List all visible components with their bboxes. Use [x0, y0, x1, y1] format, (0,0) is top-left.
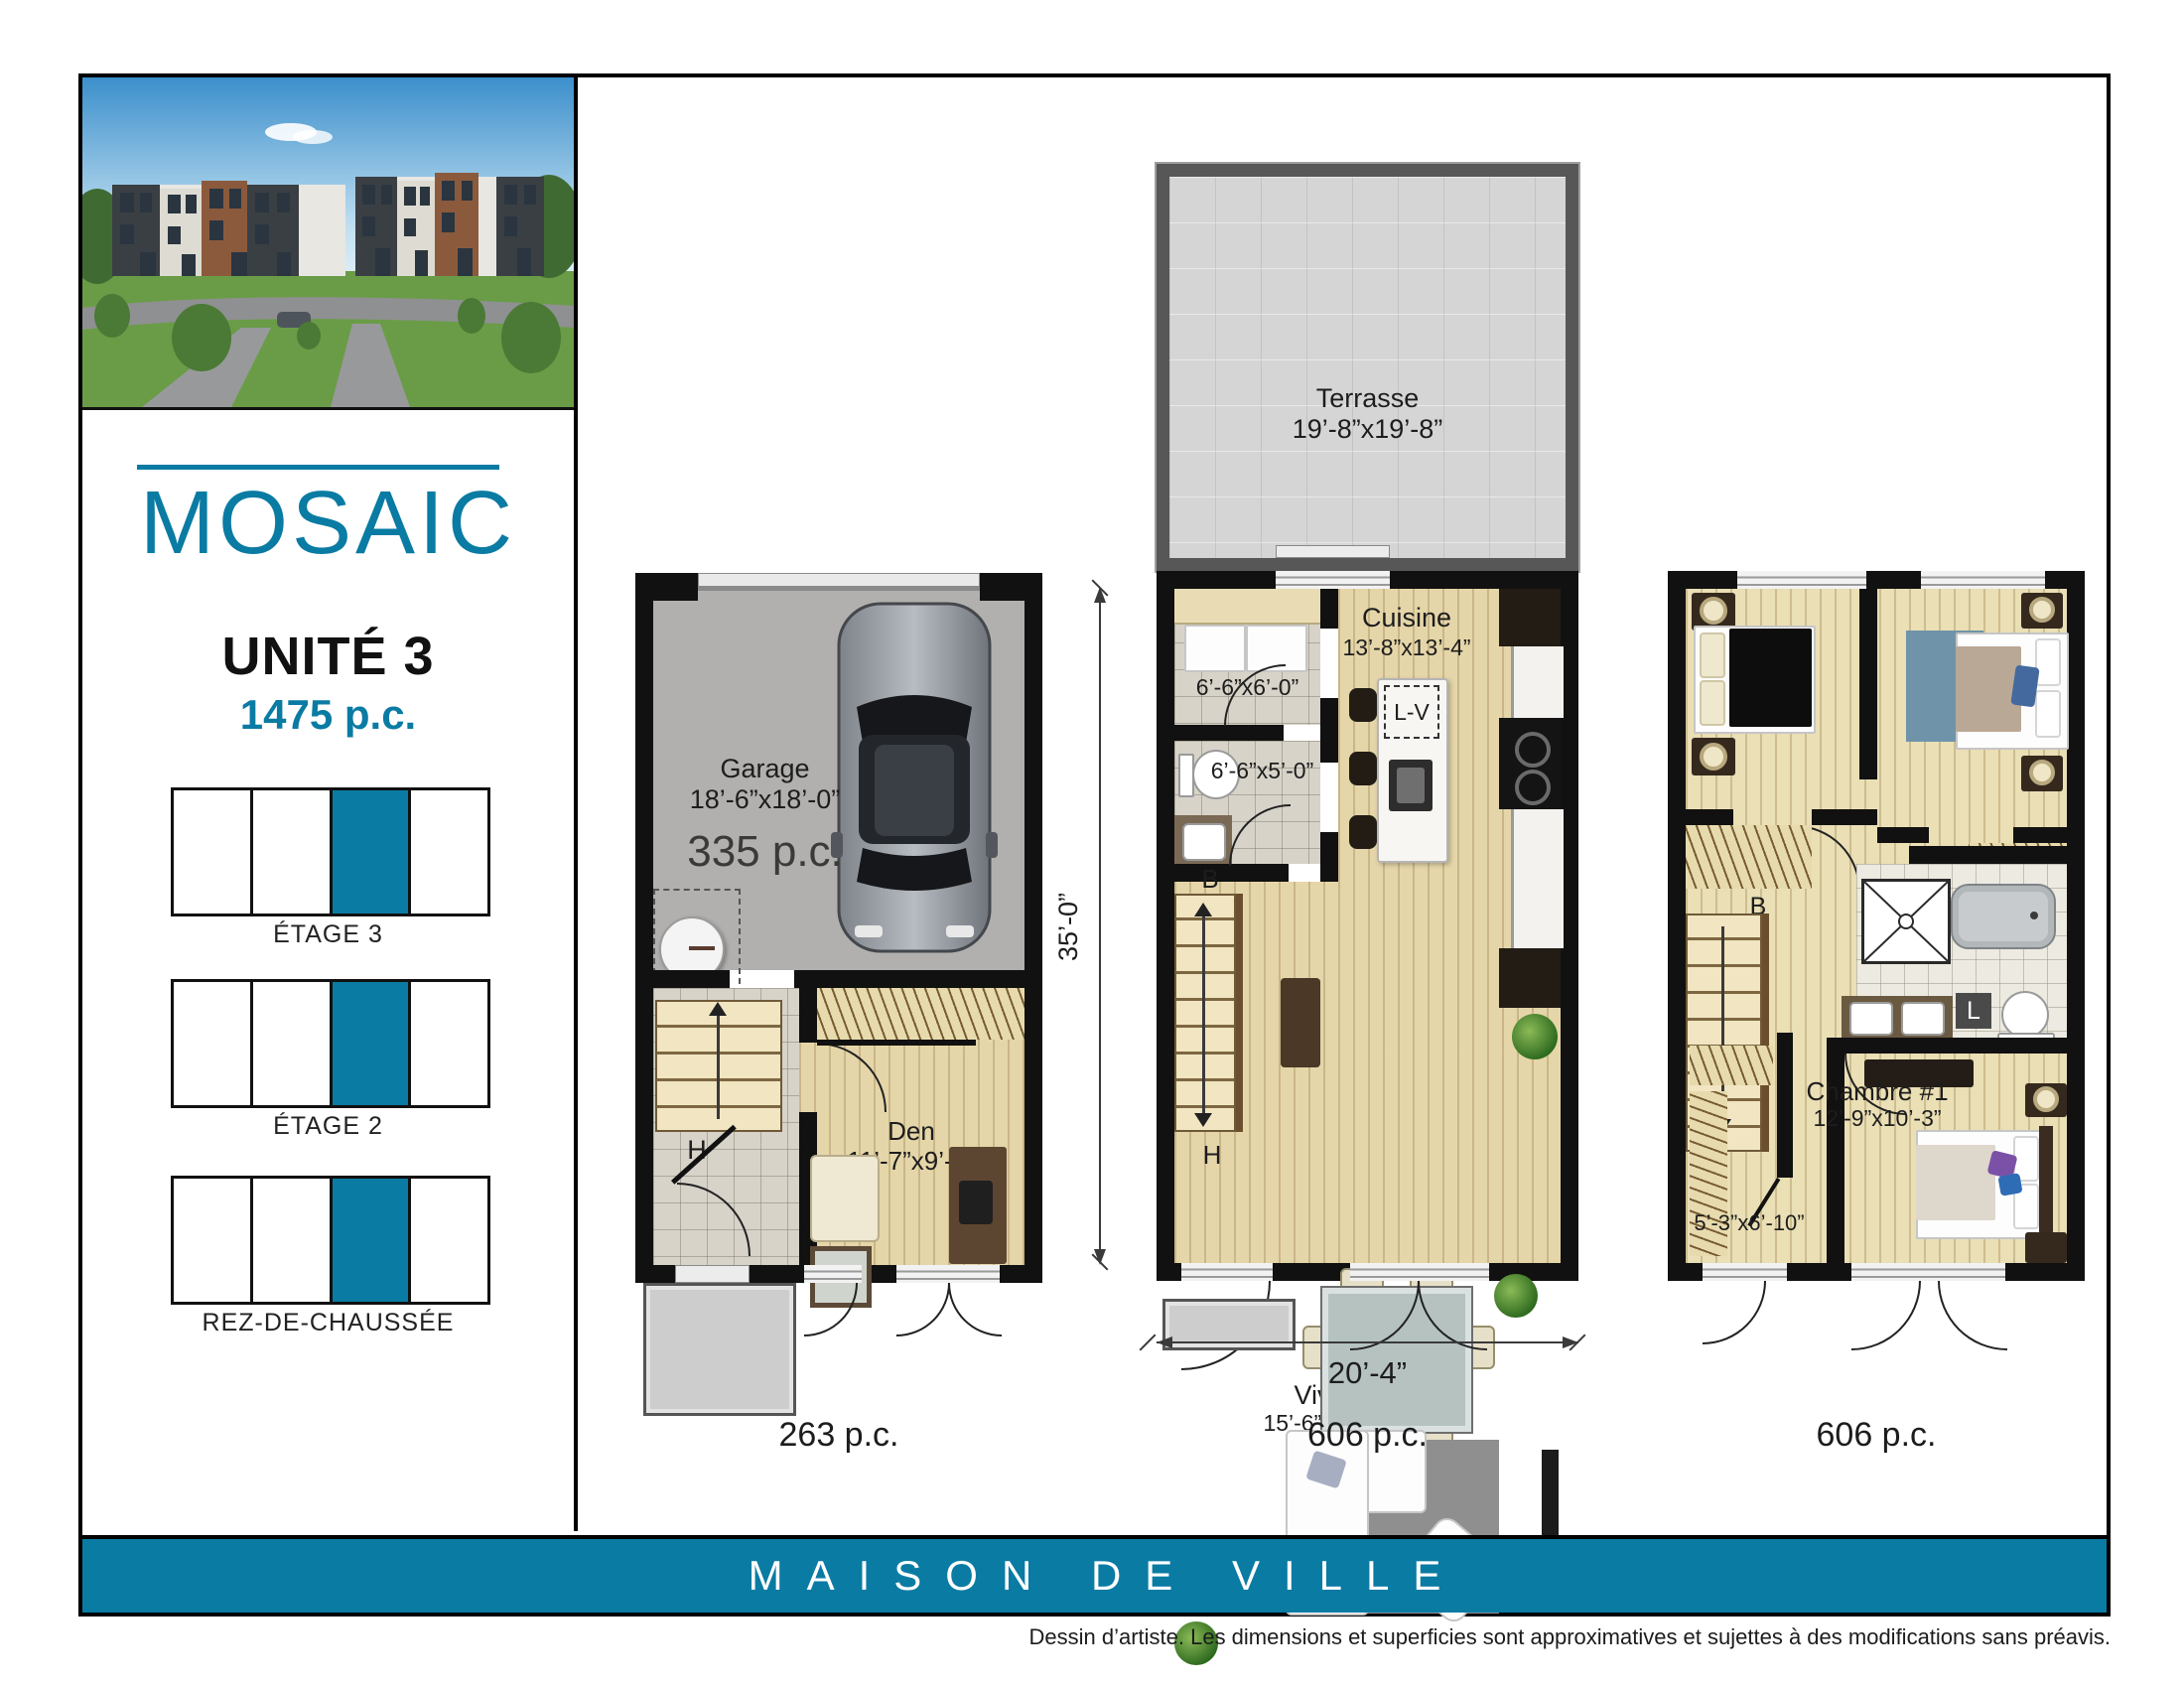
washer: [1184, 625, 1246, 672]
window-swing: [896, 1283, 950, 1336]
floor-diagram-rdc: [171, 1176, 490, 1305]
counter: [1511, 646, 1564, 718]
vanity: [1842, 996, 1953, 1038]
wall: [1320, 832, 1338, 882]
townhouse-rendering: [82, 77, 574, 407]
plan-etage2: 6’-6”x6’-0” 6’-6”x5’-0” Cuisine 13’-8”x1…: [1157, 571, 1578, 1281]
brochure-page: MOSAIC UNITÉ 3 1475 p.c. ÉTAGE 3 ÉTAGE 2…: [0, 0, 2184, 1688]
chambre-name: Chambre #1: [1763, 1077, 1991, 1107]
terrasse-dims: 19’-8”x19’-8”: [1169, 414, 1566, 445]
window: [804, 1265, 862, 1283]
shower-glass: [1864, 882, 1948, 961]
stair-arrow-down: [1194, 1113, 1212, 1127]
sink: [1901, 1002, 1945, 1036]
pillow: [1700, 633, 1725, 678]
pillow: [1700, 680, 1725, 726]
vanity: [1174, 815, 1232, 864]
stool: [1349, 752, 1377, 785]
garage-label: Garage 18’-6”x18’-0”: [653, 754, 877, 815]
window-swing: [1703, 1281, 1766, 1344]
console: [1281, 978, 1320, 1067]
patio-door-opening: [1276, 545, 1390, 558]
plan-etage2-area: 606 p.c.: [1157, 1416, 1578, 1455]
sink: [1182, 823, 1226, 861]
powder-dims: 6’-6”x5’-0”: [1204, 758, 1320, 783]
plan-etage3-area: 606 p.c.: [1668, 1416, 2085, 1455]
stair-arrow: [1202, 909, 1205, 1115]
closet: [1686, 825, 1812, 889]
nightstand: [2025, 1232, 2067, 1263]
linen-cabinet: L: [1956, 993, 1991, 1029]
dim-arrow: [1157, 1336, 1172, 1348]
diagram-unit-cell-highlighted: [333, 790, 412, 914]
diagram-unit-cell-highlighted: [333, 1179, 412, 1302]
terrasse-name: Terrasse: [1169, 383, 1566, 414]
garage-name: Garage: [653, 754, 877, 784]
wall: [653, 970, 730, 988]
wall: [1812, 809, 1877, 825]
cuisine-name: Cuisine: [1307, 603, 1506, 633]
wall: [1844, 1038, 2067, 1054]
wall: [1859, 589, 1877, 779]
logo-text: MOSAIC: [82, 473, 574, 575]
stair-label-b: B: [1180, 865, 1240, 895]
den-closet: [817, 988, 1024, 1040]
banner-title: MAISON DE VILLE: [725, 1552, 1465, 1600]
diagram-unit-cell: [411, 1179, 487, 1302]
sink-basin: [1397, 768, 1425, 803]
diagram-unit-cell: [174, 1179, 253, 1302]
desk-chair: [959, 1181, 993, 1224]
floor-diagram-etage-3: [171, 787, 490, 916]
unit-title: UNITÉ 3: [82, 626, 574, 687]
bathtub: [1951, 884, 2056, 949]
plan-rdc-area: 263 p.c.: [635, 1416, 1042, 1455]
lamp: [2029, 597, 2055, 623]
wall: [653, 591, 698, 601]
floor-diagram-label: ÉTAGE 2: [82, 1112, 574, 1141]
lamp: [1700, 743, 1727, 771]
armchair: [810, 1155, 880, 1242]
wall: [1827, 1038, 1844, 1263]
sink: [1849, 1002, 1893, 1036]
stairs: [1174, 894, 1236, 1132]
banner: MAISON DE VILLE: [82, 1535, 2107, 1613]
dim-tick: [1140, 1335, 1157, 1351]
french-door: [1350, 1263, 1489, 1281]
wall: [794, 970, 1024, 988]
dim-arrow: [1563, 1336, 1578, 1348]
window: [1737, 571, 1866, 589]
dishwasher-label: L-V: [1386, 699, 1437, 725]
sidebar: MOSAIC UNITÉ 3 1475 p.c. ÉTAGE 3 ÉTAGE 2…: [82, 77, 578, 1531]
patio-door: [1276, 571, 1390, 589]
den-name: Den: [802, 1117, 1021, 1147]
entry-door-opening: [675, 1265, 750, 1283]
dim-line-horizontal: [1157, 1341, 1578, 1343]
island-sink: [1389, 760, 1433, 811]
cabinet: [1499, 948, 1561, 1008]
duvet: [1729, 629, 1812, 727]
stair-label-h: H: [1182, 1141, 1242, 1171]
kitchen-island: L-V: [1377, 678, 1448, 863]
wall: [1320, 698, 1338, 763]
plant: [1494, 1274, 1538, 1318]
diagram-unit-cell: [174, 790, 253, 914]
wall: [1877, 827, 1929, 843]
wall: [1686, 809, 1733, 825]
wall: [1909, 846, 2067, 864]
duvet: [1956, 646, 2021, 732]
terrasse: Terrasse 19’-8”x19’-8”: [1157, 164, 1578, 571]
window-swing: [1938, 1281, 2007, 1350]
linen-label: L: [1956, 997, 1991, 1026]
stool: [1349, 815, 1377, 849]
window: [1851, 1263, 2005, 1281]
burner: [1515, 770, 1551, 805]
entry-porch: [643, 1283, 796, 1416]
shower: [1861, 879, 1951, 964]
lamp: [2029, 760, 2055, 785]
diagram-unit-cell: [253, 1179, 333, 1302]
wall: [2013, 827, 2067, 843]
wall: [817, 1040, 976, 1046]
dim-height-label: 35’-0”: [1053, 837, 1084, 1016]
diagram-unit-cell: [253, 982, 333, 1105]
pillow: [2035, 638, 2061, 686]
content-frame: MOSAIC UNITÉ 3 1475 p.c. ÉTAGE 3 ÉTAGE 2…: [78, 73, 2111, 1617]
wall: [1777, 1033, 1793, 1178]
stair-arrow: [717, 1008, 720, 1119]
unit-area: 1475 p.c.: [82, 691, 574, 739]
pillow: [2035, 690, 2061, 738]
drain: [2030, 912, 2038, 919]
lamp: [1700, 597, 1727, 625]
floor-diagram-label: ÉTAGE 3: [82, 920, 574, 949]
cooktop: [1499, 718, 1561, 809]
diagram-unit-cell: [411, 790, 487, 914]
fridge: [1499, 589, 1561, 646]
window: [1703, 1263, 1787, 1281]
walkin-hangers: [1690, 1046, 1773, 1085]
window-swing: [1851, 1281, 1921, 1350]
terrasse-label: Terrasse 19’-8”x19’-8”: [1169, 383, 1566, 445]
window: [896, 1265, 1000, 1283]
desk: [949, 1147, 1007, 1264]
wall: [799, 988, 817, 1043]
garage-area: 335 p.c.: [653, 827, 877, 878]
window: [1921, 571, 2045, 589]
window-swing: [804, 1283, 858, 1336]
dishwasher: L-V: [1384, 685, 1439, 739]
dim-width-label: 20’-4”: [1174, 1355, 1561, 1391]
stair-arrow-head: [709, 1002, 727, 1016]
lamp: [2033, 1086, 2059, 1112]
garage-dims: 18’-6”x18’-0”: [653, 784, 877, 815]
diagram-unit-cell: [411, 982, 487, 1105]
project-rendering-photo: [82, 77, 574, 410]
meter-hand: [689, 946, 715, 950]
plan-rdc: Garage 18’-6”x18’-0” 335 p.c.: [635, 573, 1042, 1283]
walkin-dims: 5’-3”x6’-10”: [1688, 1210, 1811, 1235]
balcony-door: [1181, 1263, 1273, 1281]
pillow-blue: [1997, 1173, 2022, 1196]
burner: [1515, 732, 1551, 768]
cuisine-dims: 13’-8”x13’-4”: [1307, 634, 1506, 660]
diagram-unit-cell-highlighted: [333, 982, 412, 1105]
stair-stringer: [1236, 894, 1243, 1132]
diagram-unit-cell: [253, 790, 333, 914]
floor-diagram-etage-2: [171, 979, 490, 1108]
diagram-unit-cell: [174, 982, 253, 1105]
duvet: [1916, 1145, 1995, 1220]
chambre-dims: 12’-9”x10’-3”: [1763, 1105, 1991, 1131]
dim-arrow: [1094, 587, 1106, 603]
garage-door: [698, 573, 980, 591]
toilet: [2001, 991, 2049, 1039]
counter: [1511, 809, 1564, 948]
plant: [1512, 1014, 1558, 1059]
disclaimer: Dessin d’artiste. Les dimensions et supe…: [721, 1624, 2111, 1650]
logo-rule: [137, 465, 499, 470]
dim-arrow: [1094, 1249, 1106, 1265]
dim-line-vertical: [1099, 589, 1101, 1263]
headboard: [2039, 1126, 2053, 1239]
wall: [1174, 725, 1284, 741]
stair-arrow-up: [1194, 903, 1212, 916]
floor-diagram-label: REZ-DE-CHAUSSÉE: [82, 1309, 574, 1337]
shelf: [1174, 589, 1320, 625]
plan-etage3: B L: [1668, 571, 2085, 1281]
window-swing: [948, 1283, 1002, 1336]
stool: [1349, 688, 1377, 722]
